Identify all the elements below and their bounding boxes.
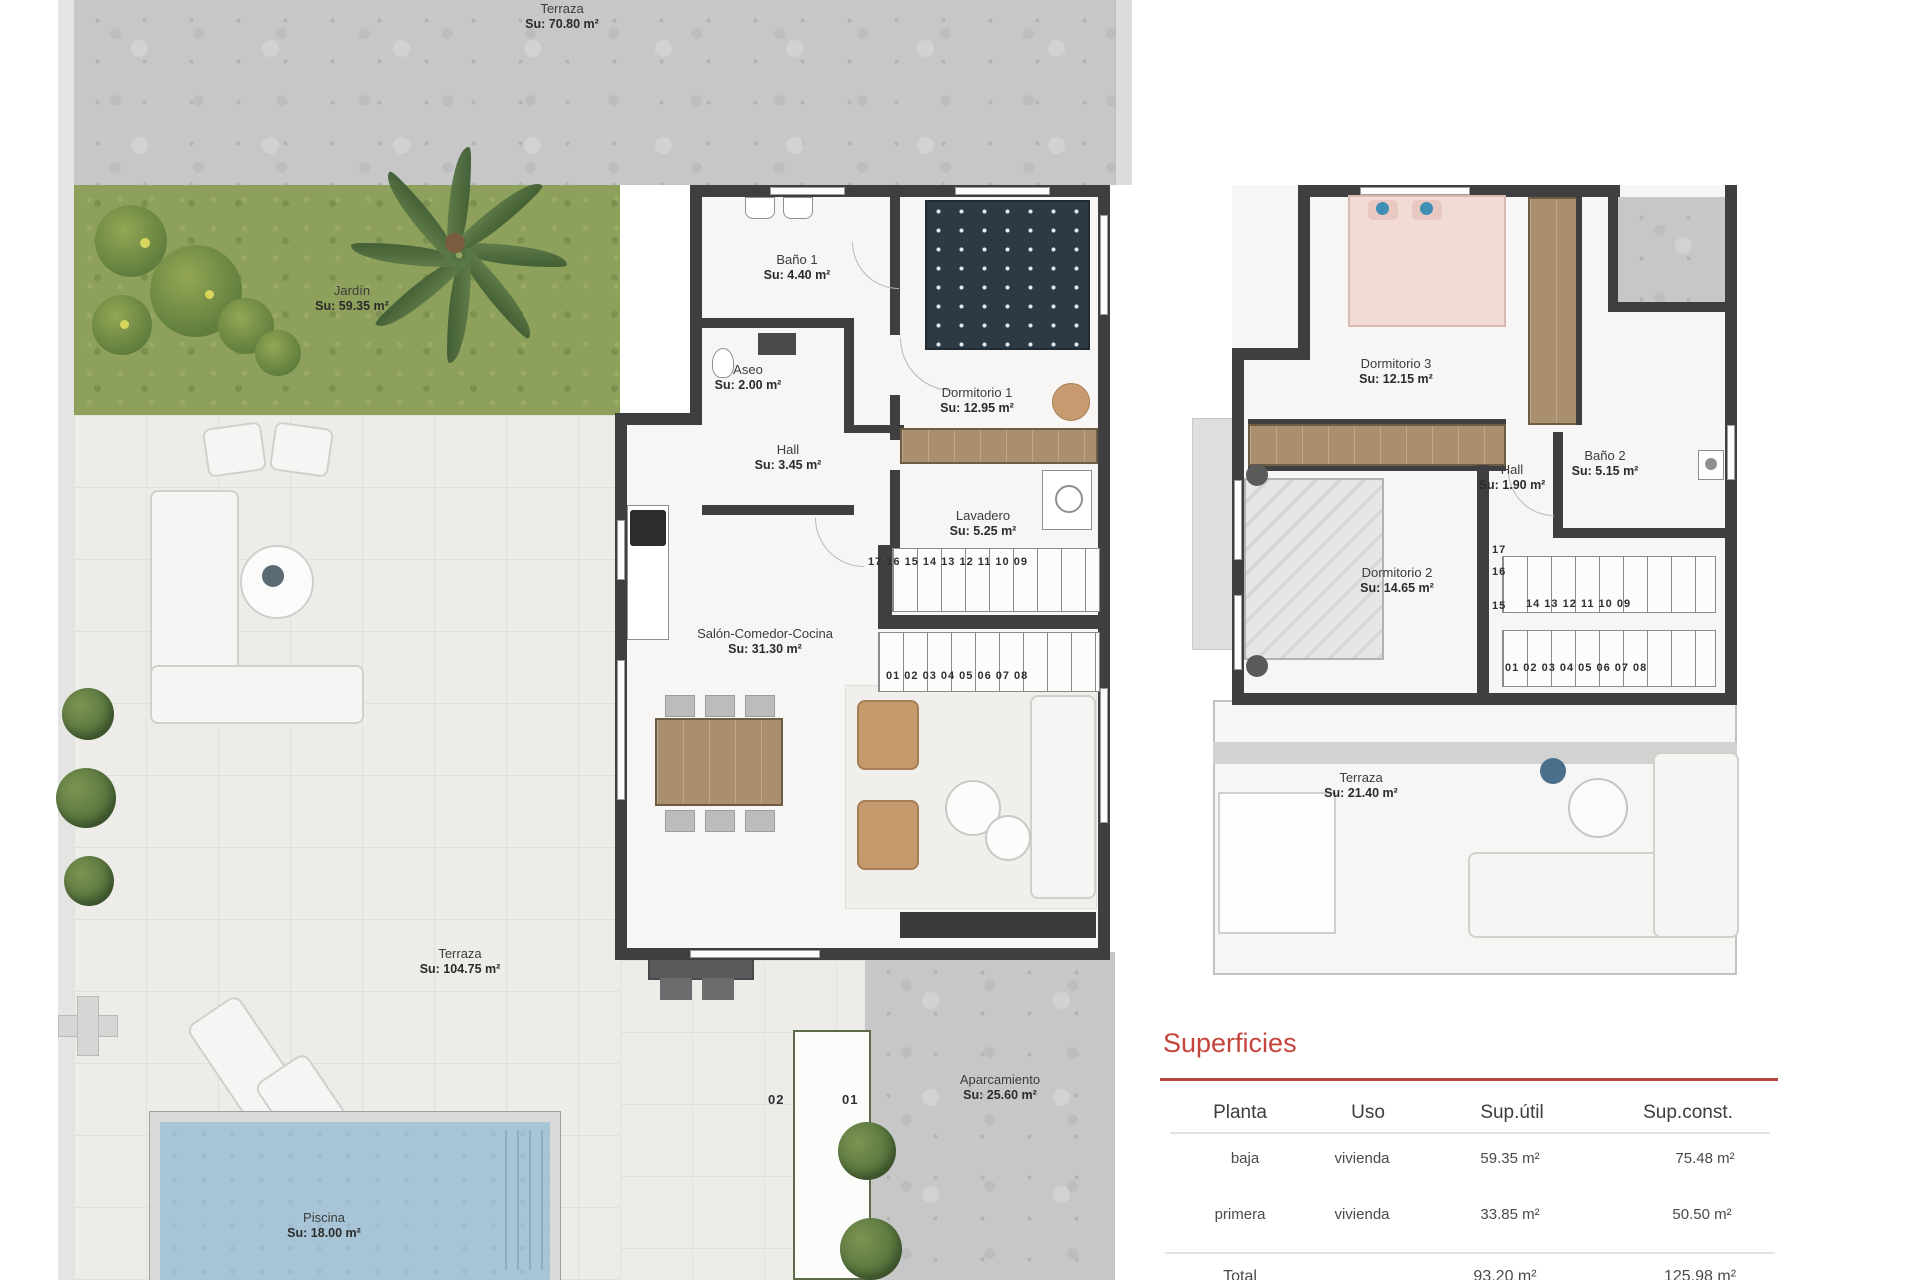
armchair-dormitorio-1 [1052,383,1090,421]
tv-bench [900,912,1096,938]
room-name: Terraza [525,1,599,17]
window [1234,595,1242,670]
room-area: Su: 14.65 m² [1360,581,1434,597]
armchair-tan [857,800,919,870]
patio-door [690,950,820,958]
room-label-salon: Salón-Comedor-Cocina Su: 31.30 m² [697,626,833,658]
pool-steps [505,1130,545,1270]
table-cell-uso: vivienda [1334,1150,1389,1167]
wall [1576,197,1582,425]
table-decor [262,565,284,587]
tree [840,1218,902,1280]
washing-machine-door [1055,485,1083,513]
room-name: Jardín [315,283,389,299]
outdoor-chair [702,978,734,1000]
stairs-number-17: 17 [1492,544,1506,556]
wall [1248,466,1506,471]
dining-chair [665,810,695,832]
room-name: Salón-Comedor-Cocina [697,626,833,642]
palm-trunk [445,233,465,253]
outdoor-chair [660,978,692,1000]
pillow-dot [1420,202,1433,215]
table-cell-sup-util: 33.85 m² [1480,1206,1539,1223]
room-label-bano-1: Baño 1 Su: 4.40 m² [764,252,831,284]
terrace-round-table [1568,778,1628,838]
stairs-numbers-upper: 14 13 12 11 10 09 [1526,598,1631,610]
column-header-uso: Uso [1351,1102,1385,1124]
superficies-header-rule [1170,1132,1770,1134]
room-area: Su: 70.80 m² [525,17,599,33]
column-header-planta: Planta [1213,1102,1267,1124]
garden-chair [269,421,334,478]
dining-chair [705,695,735,717]
room-area: Su: 4.40 m² [764,268,831,284]
aseo-sink-counter [758,333,796,355]
coffee-table [985,815,1031,861]
nightstand [1246,655,1268,677]
room-area: Su: 21.40 m² [1324,786,1398,802]
superficies-total-rule [1165,1252,1775,1254]
column-header-sup-const: Sup.const. [1643,1102,1733,1124]
bathroom-sink [783,197,813,219]
room-label-terraza-top: Terraza Su: 70.80 m² [525,1,599,33]
garden-sofa-horizontal [150,665,364,724]
armchair-tan [857,700,919,770]
room-area: Su: 3.45 m² [755,458,822,474]
room-area: Su: 12.95 m² [940,401,1014,417]
wardrobe-dormitorio-3 [1528,197,1578,425]
wall [1298,185,1310,360]
living-sofa [1030,695,1096,899]
window [1360,187,1470,195]
room-name: Dormitorio 3 [1359,356,1433,372]
bush-berries [120,320,129,329]
table-cell-sup-util: 59.35 m² [1480,1150,1539,1167]
wall [844,425,904,433]
room-label-terraza-main: Terraza Su: 104.75 m² [420,946,501,978]
wall [1553,528,1737,538]
sink-dot [1705,458,1717,470]
table-cell-planta: baja [1231,1150,1259,1167]
wall [615,413,702,425]
superficies-red-rule [1160,1078,1778,1081]
room-area: Su: 5.25 m² [950,524,1017,540]
garden-chair [202,421,267,478]
table-cell-uso: vivienda [1334,1206,1389,1223]
skylight-concrete [1618,197,1725,312]
utility-marker [77,996,99,1056]
dining-chair [705,810,735,832]
wall [890,470,900,555]
room-area: Su: 59.35 m² [315,299,389,315]
room-label-bano-2: Baño 2 Su: 5.15 m² [1572,448,1639,480]
window [1100,215,1108,315]
stairs-numbers-lower: 01 02 03 04 05 06 07 08 [1505,662,1647,674]
wardrobe-dormitorio-2 [1248,424,1506,466]
wall [702,318,854,328]
floor-plan-sheet: 02 01 [0,0,1920,1280]
room-name: Baño 1 [764,252,831,268]
sliding-door [617,660,625,800]
room-label-terraza-first: Terraza Su: 21.40 m² [1324,770,1398,802]
room-label-piscina: Piscina Su: 18.00 m² [287,1210,361,1242]
plot-right-strip [1115,0,1132,185]
table-cell-total-sup-const: 125.98 m² [1664,1268,1736,1280]
room-name: Baño 2 [1572,448,1639,464]
cooktop [630,510,666,546]
room-label-dormitorio-1: Dormitorio 1 Su: 12.95 m² [940,385,1014,417]
bed-dormitorio-1 [925,200,1090,350]
plot-left-strip [58,0,75,1280]
wall [1608,185,1618,312]
room-name: Terraza [420,946,501,962]
stairs-number-16: 16 [1492,566,1506,578]
room-area: Su: 18.00 m² [287,1226,361,1242]
parking-number-02: 02 [768,1092,784,1107]
room-area: Su: 1.90 m² [1479,478,1546,494]
room-name: Dormitorio 1 [940,385,1014,401]
room-label-hall-ground: Hall Su: 3.45 m² [755,442,822,474]
room-area: Su: 25.60 m² [960,1088,1040,1104]
room-label-jardin: Jardín Su: 59.35 m² [315,283,389,315]
room-area: Su: 5.15 m² [1572,464,1639,480]
dining-chair [745,695,775,717]
terrace-sofa-vertical [1653,752,1739,938]
tree [62,688,114,740]
room-label-hall-first: Hall Su: 1.90 m² [1479,462,1546,494]
wall [1248,419,1506,424]
table-cell-total-sup-util: 93.20 m² [1473,1268,1536,1280]
nightstand [1246,464,1268,486]
table-cell-total-label: Total [1223,1268,1257,1280]
dining-chair [665,695,695,717]
room-name: Hall [755,442,822,458]
window [1727,425,1735,480]
wall [1608,302,1737,312]
stairs-number-15: 15 [1492,600,1506,612]
room-label-dormitorio-2: Dormitorio 2 Su: 14.65 m² [1360,565,1434,597]
room-name: Hall [1479,462,1546,478]
wall [690,185,702,425]
room-name: Aseo [715,362,782,378]
room-area: Su: 104.75 m² [420,962,501,978]
stairs-numbers-upper: 17 16 15 14 13 12 11 10 09 [868,556,1028,568]
terrace-plant [1540,758,1566,784]
room-name: Lavadero [950,508,1017,524]
room-name: Dormitorio 2 [1360,565,1434,581]
window [617,520,625,580]
window [955,187,1050,195]
window [1234,480,1242,560]
stairs-lower-flight [878,632,1100,692]
room-name: Terraza [1324,770,1398,786]
bush-berries [205,290,214,299]
tree [64,856,114,906]
room-label-lavadero: Lavadero Su: 5.25 m² [950,508,1017,540]
room-label-dormitorio-3: Dormitorio 3 Su: 12.15 m² [1359,356,1433,388]
stairs-lower-flight [1502,630,1716,687]
room-label-aparcamiento: Aparcamiento Su: 25.60 m² [960,1072,1040,1104]
stairs-numbers-lower: 01 02 03 04 05 06 07 08 [886,670,1028,682]
table-cell-planta: primera [1215,1206,1266,1223]
tree [56,768,116,828]
aparcamiento-concrete [865,952,1115,1280]
room-name: Aparcamiento [960,1072,1040,1088]
terrace-planter-box [1218,792,1336,934]
window [770,187,845,195]
superficies-title: Superficies [1163,1028,1297,1059]
wall [878,615,1108,629]
window [1100,688,1108,823]
room-name: Piscina [287,1210,361,1226]
table-cell-sup-const: 75.48 m² [1675,1150,1734,1167]
bush [255,330,301,376]
wall [844,318,854,432]
wall [1477,465,1489,705]
tree [838,1122,896,1180]
bathroom-sink [745,197,775,219]
room-area: Su: 31.30 m² [697,642,833,658]
dining-chair [745,810,775,832]
wardrobe-dormitorio-1 [900,428,1098,464]
room-area: Su: 2.00 m² [715,378,782,394]
bush-berries [140,238,150,248]
table-cell-sup-const: 50.50 m² [1672,1206,1731,1223]
room-label-aseo: Aseo Su: 2.00 m² [715,362,782,394]
wall [702,505,854,515]
wall [890,395,900,440]
parking-number-01: 01 [842,1092,858,1107]
dining-table [655,718,783,806]
wall [1553,432,1563,532]
column-header-sup-util: Sup.útil [1480,1102,1543,1124]
pillow-dot [1376,202,1389,215]
balcony-strip [1192,418,1234,650]
room-area: Su: 12.15 m² [1359,372,1433,388]
pool [150,1112,560,1280]
